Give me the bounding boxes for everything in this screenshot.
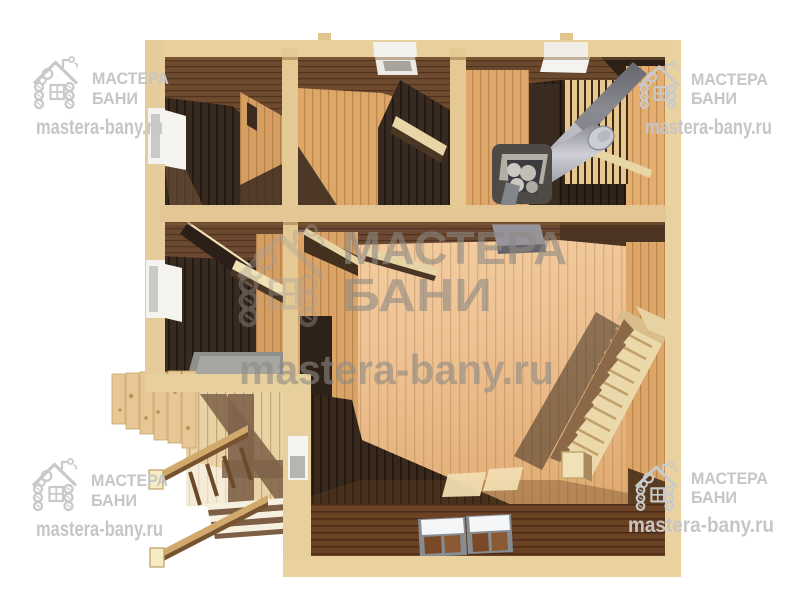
svg-text:БАНИ: БАНИ (91, 492, 137, 510)
svg-text:МАСТЕРА: МАСТЕРА (691, 71, 768, 89)
svg-text:МАСТЕРА: МАСТЕРА (691, 470, 768, 488)
svg-text:mastera-bany.ru: mastera-bany.ru (36, 518, 163, 541)
svg-text:mastera-bany.ru: mastera-bany.ru (628, 514, 774, 537)
svg-text:МАСТЕРА: МАСТЕРА (342, 222, 567, 274)
svg-text:БАНИ: БАНИ (92, 90, 138, 108)
svg-text:mastera-bany.ru: mastera-bany.ru (645, 116, 772, 139)
svg-text:БАНИ: БАНИ (691, 90, 737, 108)
svg-text:БАНИ: БАНИ (342, 269, 492, 321)
svg-text:МАСТЕРА: МАСТЕРА (92, 70, 169, 88)
svg-text:БАНИ: БАНИ (691, 489, 737, 507)
svg-text:mastera-bany.ru: mastera-bany.ru (36, 116, 163, 139)
svg-text:mastera-bany.ru: mastera-bany.ru (239, 346, 554, 393)
svg-text:МАСТЕРА: МАСТЕРА (91, 472, 168, 490)
